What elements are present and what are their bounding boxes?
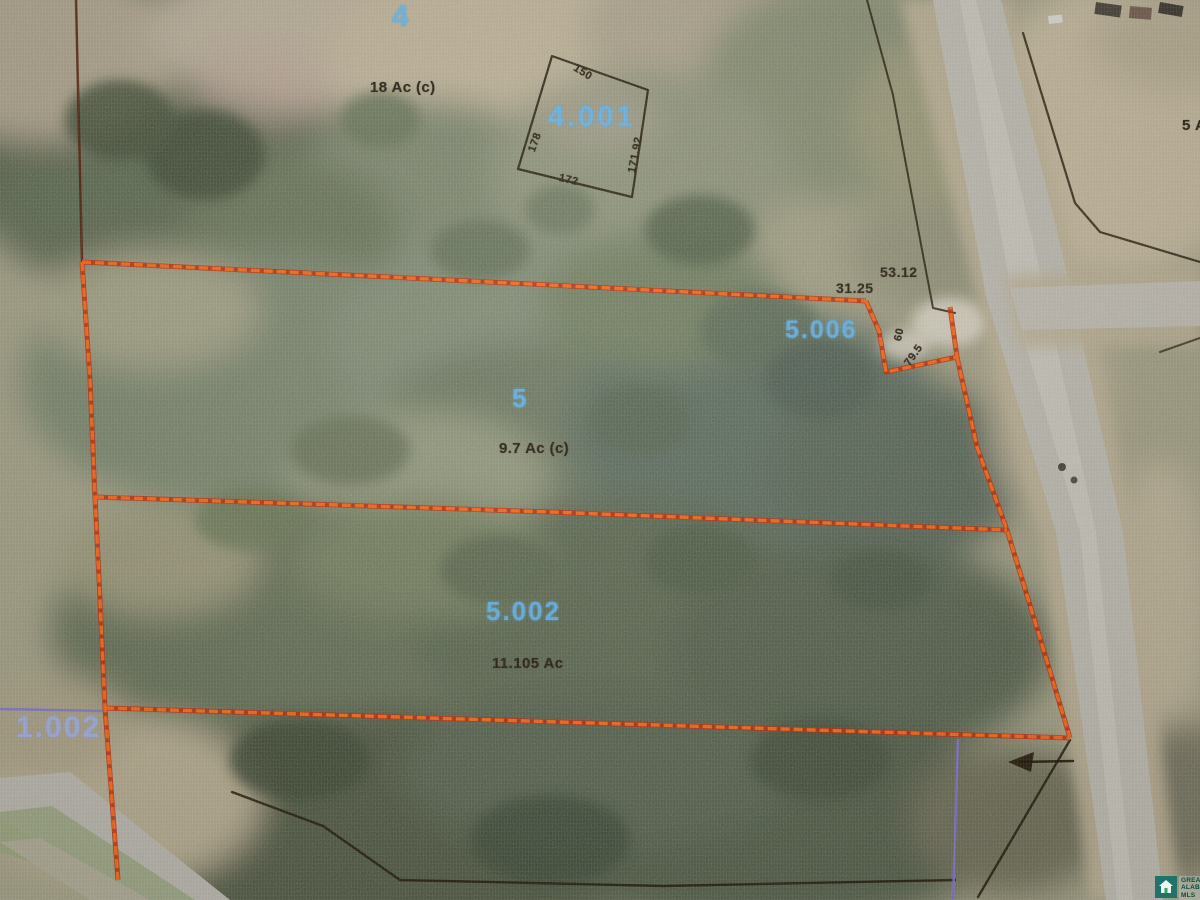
measurement-3125: 31.25 [836,281,874,295]
parcel-label-4001: 4.001 [548,103,636,132]
acreage-label-5: 9.7 Ac (c) [499,441,569,456]
acreage-label-5002: 11.105 Ac [492,656,563,671]
parcel-label-5a-partial: 5 A [1182,118,1200,133]
mls-house-icon [1155,876,1177,898]
aerial-parcel-map: 4 18 Ac (c) 4.001 150 178 171.92 172 31.… [0,0,1200,900]
measurement-5312: 53.12 [880,265,918,279]
acreage-label-4: 18 Ac (c) [370,80,436,95]
parcel-label-5002: 5.002 [486,598,561,624]
parcel-label-5: 5 [512,385,526,411]
mls-line-1: GREATER [1181,877,1200,884]
parcel-label-1002: 1.002 [16,713,101,743]
mls-watermark: GREATER ALABAMA MLS [1155,876,1200,900]
parcel-label-4: 4 [392,2,409,32]
parcel-label-5006: 5.006 [785,318,858,343]
aerial-imagery [0,0,1200,900]
mls-line-2: ALABAMA [1181,884,1200,891]
mls-watermark-text: GREATER ALABAMA MLS [1179,876,1200,900]
mls-line-3: MLS [1181,892,1200,899]
